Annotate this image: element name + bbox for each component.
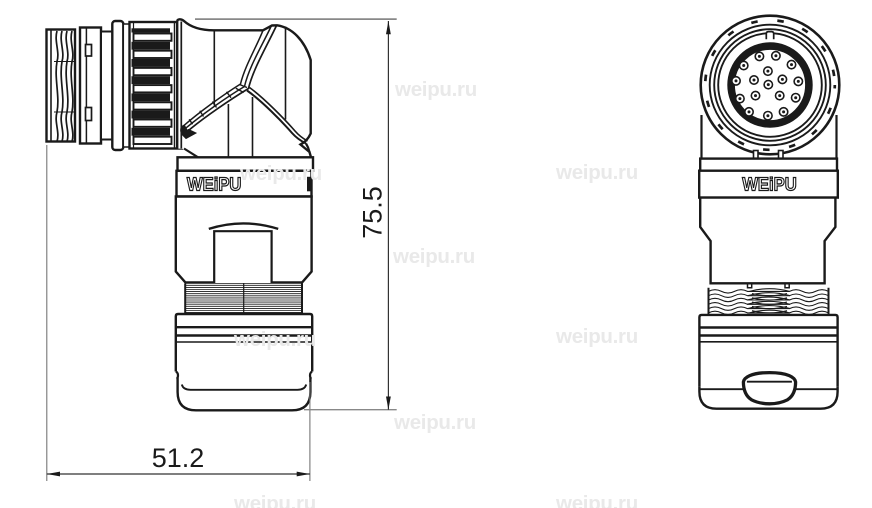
svg-text:75.5: 75.5 (358, 186, 388, 239)
svg-text:weipu.ru: weipu.ru (394, 78, 477, 101)
svg-text:weipu.ru: weipu.ru (233, 328, 316, 351)
svg-text:51.2: 51.2 (152, 443, 205, 473)
svg-text:weipu.ru: weipu.ru (393, 411, 476, 434)
svg-text:weipu.ru: weipu.ru (555, 325, 638, 348)
svg-text:weipu.ru: weipu.ru (555, 492, 638, 508)
svg-text:weipu.ru: weipu.ru (233, 492, 316, 508)
svg-text:WEiPU: WEiPU (187, 173, 242, 194)
svg-text:weipu.ru: weipu.ru (239, 162, 322, 185)
svg-text:weipu.ru: weipu.ru (392, 245, 475, 268)
svg-text:WEiPU: WEiPU (742, 173, 797, 194)
svg-text:weipu.ru: weipu.ru (555, 161, 638, 184)
